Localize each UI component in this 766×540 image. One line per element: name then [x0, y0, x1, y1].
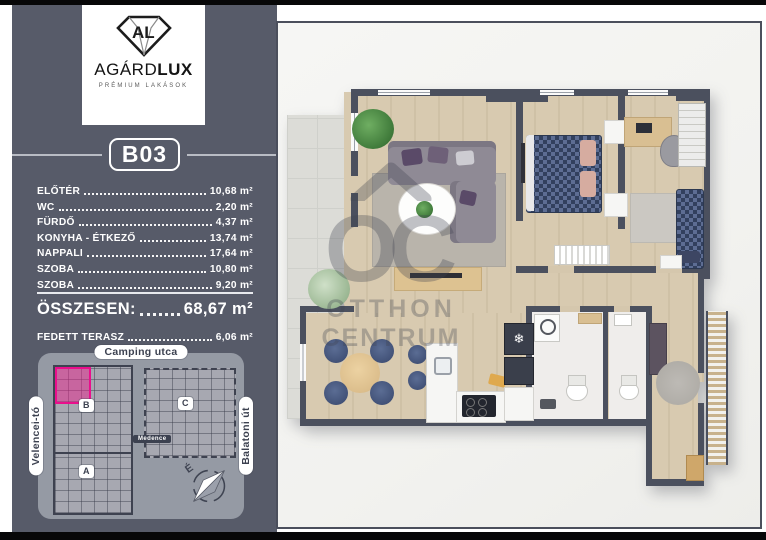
room-area: 9,20 m² [216, 280, 253, 291]
street-label-right: Balatoni út [239, 397, 253, 475]
dotted-leader [79, 224, 212, 226]
total-value: 68,67 m² [184, 300, 253, 319]
room-name: SZOBA [37, 264, 74, 275]
kitchen-counter [426, 343, 458, 423]
covered-terrace-row: FEDETT TERASZ 6,06 m² [37, 332, 253, 343]
wall-segment [526, 306, 652, 312]
total-label: ÖSSZESEN: [37, 300, 136, 319]
room-name: NAPPALI [37, 248, 83, 259]
dining-chair [370, 339, 394, 363]
kitchen-sink [434, 357, 452, 375]
terrace-label: FEDETT TERASZ [37, 332, 124, 343]
wall-segment [351, 193, 358, 227]
terrace-plant [308, 269, 350, 309]
wall-segment [603, 310, 608, 419]
room-area: 10,68 m² [210, 186, 253, 197]
room-area-row: SZOBA 10,80 m² [37, 264, 253, 275]
apartment-render: ❄ [278, 23, 760, 527]
pillow [580, 140, 596, 166]
room-name: KONYHA - ÉTKEZŐ [37, 233, 136, 244]
info-sidebar: AL AGÁRDLUX PRÉMIUM LAKÁSOK B03 ELŐTÉR 1… [12, 5, 277, 532]
wardrobe [678, 103, 706, 167]
pouf [408, 345, 427, 364]
total-area-row: ÖSSZESEN: 68,67 m² [37, 300, 253, 319]
building-a [53, 452, 133, 515]
pillow [427, 146, 449, 164]
dining-chair [370, 381, 394, 405]
pillow [580, 171, 596, 197]
flyer-page: AL AGÁRDLUX PRÉMIUM LAKÁSOK B03 ELŐTÉR 1… [0, 0, 766, 540]
room-area-row: WC 2,20 m² [37, 202, 253, 213]
entry-bench [686, 455, 704, 481]
pergola-slats [706, 311, 728, 465]
room-area: 4,37 m² [216, 217, 253, 228]
table-plant [416, 201, 433, 218]
dining-chair [324, 381, 348, 405]
burner [478, 398, 487, 407]
sofa-chaise [450, 181, 496, 243]
diamond-logo-icon: AL [113, 12, 175, 58]
burner [466, 408, 475, 417]
compass-icon: É [180, 457, 238, 515]
wall-tv [521, 143, 525, 183]
divider-line [187, 154, 277, 156]
building-c [144, 368, 236, 458]
room-area: 17,64 m² [210, 248, 253, 259]
room-name: SZOBA [37, 280, 74, 291]
bath-shelf [578, 313, 602, 324]
wall-segment [698, 273, 704, 373]
laptop [636, 123, 652, 133]
waterfront-label-left: Velencei-tó [29, 397, 43, 476]
brand-tagline: PRÉMIUM LAKÁSOK [99, 83, 189, 89]
bath-mat [540, 399, 556, 409]
kitchen-counter [504, 387, 534, 421]
street-label-top: Camping utca [94, 345, 187, 359]
wall-segment [300, 306, 306, 344]
dotted-leader [87, 255, 206, 257]
divider-line [12, 154, 102, 156]
burner [478, 408, 487, 417]
brand-logo-box: AL AGÁRDLUX PRÉMIUM LAKÁSOK [82, 5, 205, 125]
nightstand [604, 193, 628, 217]
room-area-list: ELŐTÉR 10,68 m² WC 2,20 m² FÜRDŐ 4,37 m²… [37, 186, 253, 295]
floor-plan-frame: ❄ [276, 21, 762, 529]
pillow [459, 189, 478, 206]
terrace-value: 6,06 m² [216, 332, 253, 343]
site-map: Camping utca Velencei-tó Balatoni út B C… [38, 353, 244, 519]
room-name: ELŐTÉR [37, 186, 80, 197]
dotted-leader [78, 287, 212, 289]
unit-code-badge: B03 [109, 138, 180, 171]
toilet-tank [568, 375, 586, 386]
radiator [554, 245, 610, 265]
pillow [455, 150, 474, 166]
dotted-leader [128, 339, 212, 341]
unit-code-row: B03 [12, 138, 277, 171]
dotted-leader [84, 193, 206, 195]
room-name: WC [37, 202, 55, 213]
plant [352, 109, 394, 149]
tv-console [394, 267, 482, 291]
pouf [408, 371, 427, 390]
wall-segment [300, 381, 306, 421]
room-area-row: ELŐTÉR 10,68 m² [37, 186, 253, 197]
building-label-a: A [79, 465, 94, 478]
window [378, 90, 430, 95]
toilet-tank [621, 375, 637, 386]
tv [410, 273, 462, 278]
pool-label: Medence [133, 435, 171, 443]
building-label-c: C [178, 397, 193, 410]
window [300, 344, 306, 381]
window [540, 90, 574, 95]
wc-sink [614, 314, 632, 326]
building-label-b: B [79, 399, 94, 412]
door-opening [548, 266, 574, 273]
washing-machine-door [540, 319, 556, 335]
oven [504, 357, 534, 385]
bottom-black-bar [0, 532, 766, 540]
brand-name: AGÁRDLUX [94, 60, 192, 80]
floor-plan: ❄ [278, 23, 760, 527]
room-name: FÜRDŐ [37, 217, 75, 228]
room-area: 13,74 m² [210, 233, 253, 244]
bed-sheet-fold [526, 135, 534, 211]
room-area-row: SZOBA 9,20 m² [37, 280, 253, 291]
room-area: 2,20 m² [216, 202, 253, 213]
door-mat [660, 255, 682, 269]
wc-floor [609, 310, 647, 421]
dotted-leader [140, 240, 206, 242]
window [628, 90, 668, 95]
hallway-rug [656, 361, 700, 405]
room-area-row: KONYHA - ÉTKEZŐ 13,74 m² [37, 233, 253, 244]
fridge: ❄ [504, 323, 534, 355]
room-area-row: NAPPALI 17,64 m² [37, 248, 253, 259]
door-opening [560, 306, 580, 312]
dining-chair [324, 339, 348, 363]
dotted-leader [78, 271, 206, 273]
dotted-leader [140, 313, 180, 316]
room-area-row: FÜRDŐ 4,37 m² [37, 217, 253, 228]
svg-text:AL: AL [132, 23, 155, 42]
pillow [401, 148, 423, 167]
burner [466, 398, 475, 407]
total-separator [37, 292, 253, 294]
dotted-leader [59, 209, 212, 211]
room-area: 10,80 m² [210, 264, 253, 275]
compass-north-label: É [182, 461, 195, 476]
door-opening [614, 306, 630, 312]
